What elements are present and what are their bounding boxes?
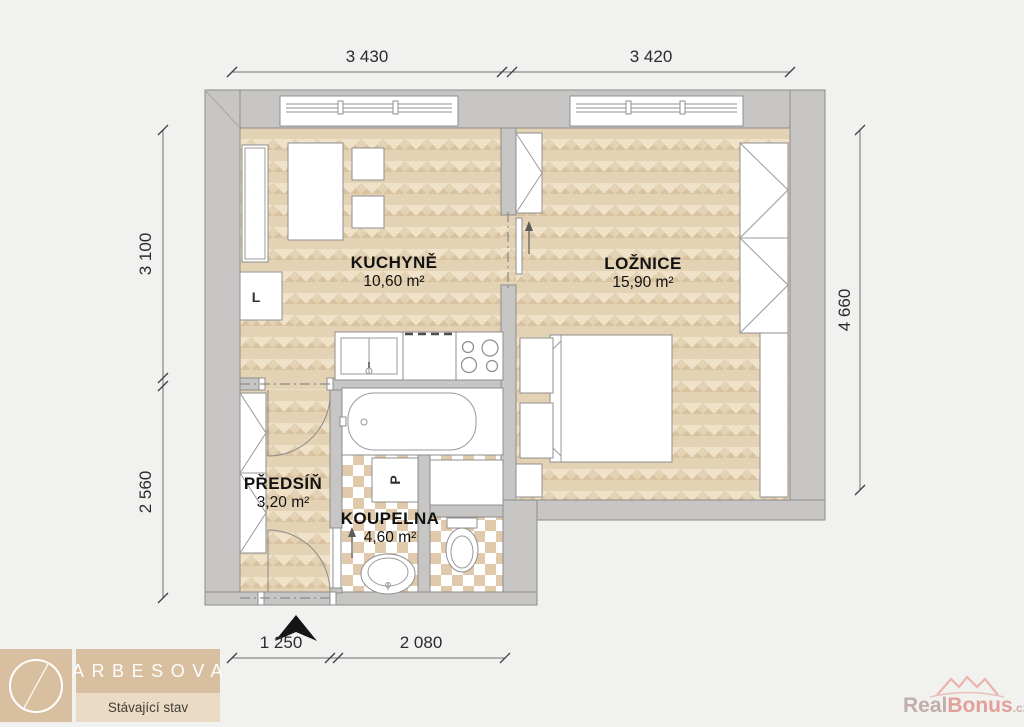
kitchen-table <box>288 143 343 240</box>
dim-top-kitchen: 3 430 <box>346 47 389 67</box>
room-label-bathroom: KOUPELNA 4,60 m² <box>341 509 440 547</box>
floor-plan-drawing: L <box>0 0 1024 722</box>
room-label-bedroom: LOŽNICE 15,90 m² <box>604 254 681 292</box>
bedroom-corner-cabinet <box>516 464 542 497</box>
fridge <box>240 272 282 320</box>
compass-icon <box>0 649 72 722</box>
wall-hall-bath <box>330 390 342 528</box>
kitchen-window <box>280 96 458 126</box>
kitchen-counter <box>403 332 456 380</box>
bedroom-sliding-door <box>516 218 522 274</box>
wall-wc-horizontal <box>430 505 503 517</box>
nightstand <box>520 403 553 458</box>
nightstand <box>520 338 553 393</box>
room-label-hallway: PŘEDSÍŇ 3,20 m² <box>244 474 322 512</box>
watermark-text: RealBonus.cz <box>903 694 1023 718</box>
wall-right <box>790 90 825 520</box>
fridge-label: L <box>252 289 261 305</box>
toilet-tank <box>447 518 477 528</box>
tub-faucet <box>340 417 346 426</box>
floor-plan-image: { "plan": { "rooms": [ {"id": "kuchyne",… <box>0 0 1024 722</box>
logo-tile <box>0 649 72 722</box>
bathtub <box>342 388 503 455</box>
bed <box>550 335 672 462</box>
wc-cabinet <box>430 460 503 505</box>
bedroom-left-wardrobe <box>516 133 542 213</box>
bedroom-entry-arrow <box>525 221 533 254</box>
watermark: RealBonus.cz <box>903 664 1023 720</box>
hall-door-arc <box>268 390 330 456</box>
bedroom-window <box>570 96 743 126</box>
dim-bottom-right: 2 080 <box>400 633 443 653</box>
bedroom-side-cabinet <box>760 333 788 497</box>
kitchen-chair <box>352 148 384 180</box>
washer-label: P <box>387 475 403 484</box>
kitchen-bench <box>242 145 268 262</box>
stove <box>456 332 503 380</box>
room-label-kitchen: KUCHYNĚ 10,60 m² <box>351 253 438 291</box>
realbonus-house-icon <box>903 664 1023 698</box>
project-name: ARBESOVA <box>76 649 220 693</box>
wall-partition-upper <box>501 128 516 215</box>
wall-bath-right <box>503 500 537 605</box>
wall-left <box>205 90 240 605</box>
entrance-door-arc <box>268 530 330 592</box>
kitchen-chair <box>352 196 384 228</box>
project-subtitle: Stávající stav <box>76 693 220 722</box>
dim-bottom-left: 1 250 <box>260 633 303 653</box>
bedroom-furniture <box>516 133 788 497</box>
dim-top-bedroom: 3 420 <box>630 47 673 67</box>
dim-left-upper: 3 100 <box>136 233 156 276</box>
dim-left-lower: 2 560 <box>136 471 156 514</box>
wall-bedroom-bottom <box>503 500 825 520</box>
dim-right: 4 660 <box>835 289 855 332</box>
